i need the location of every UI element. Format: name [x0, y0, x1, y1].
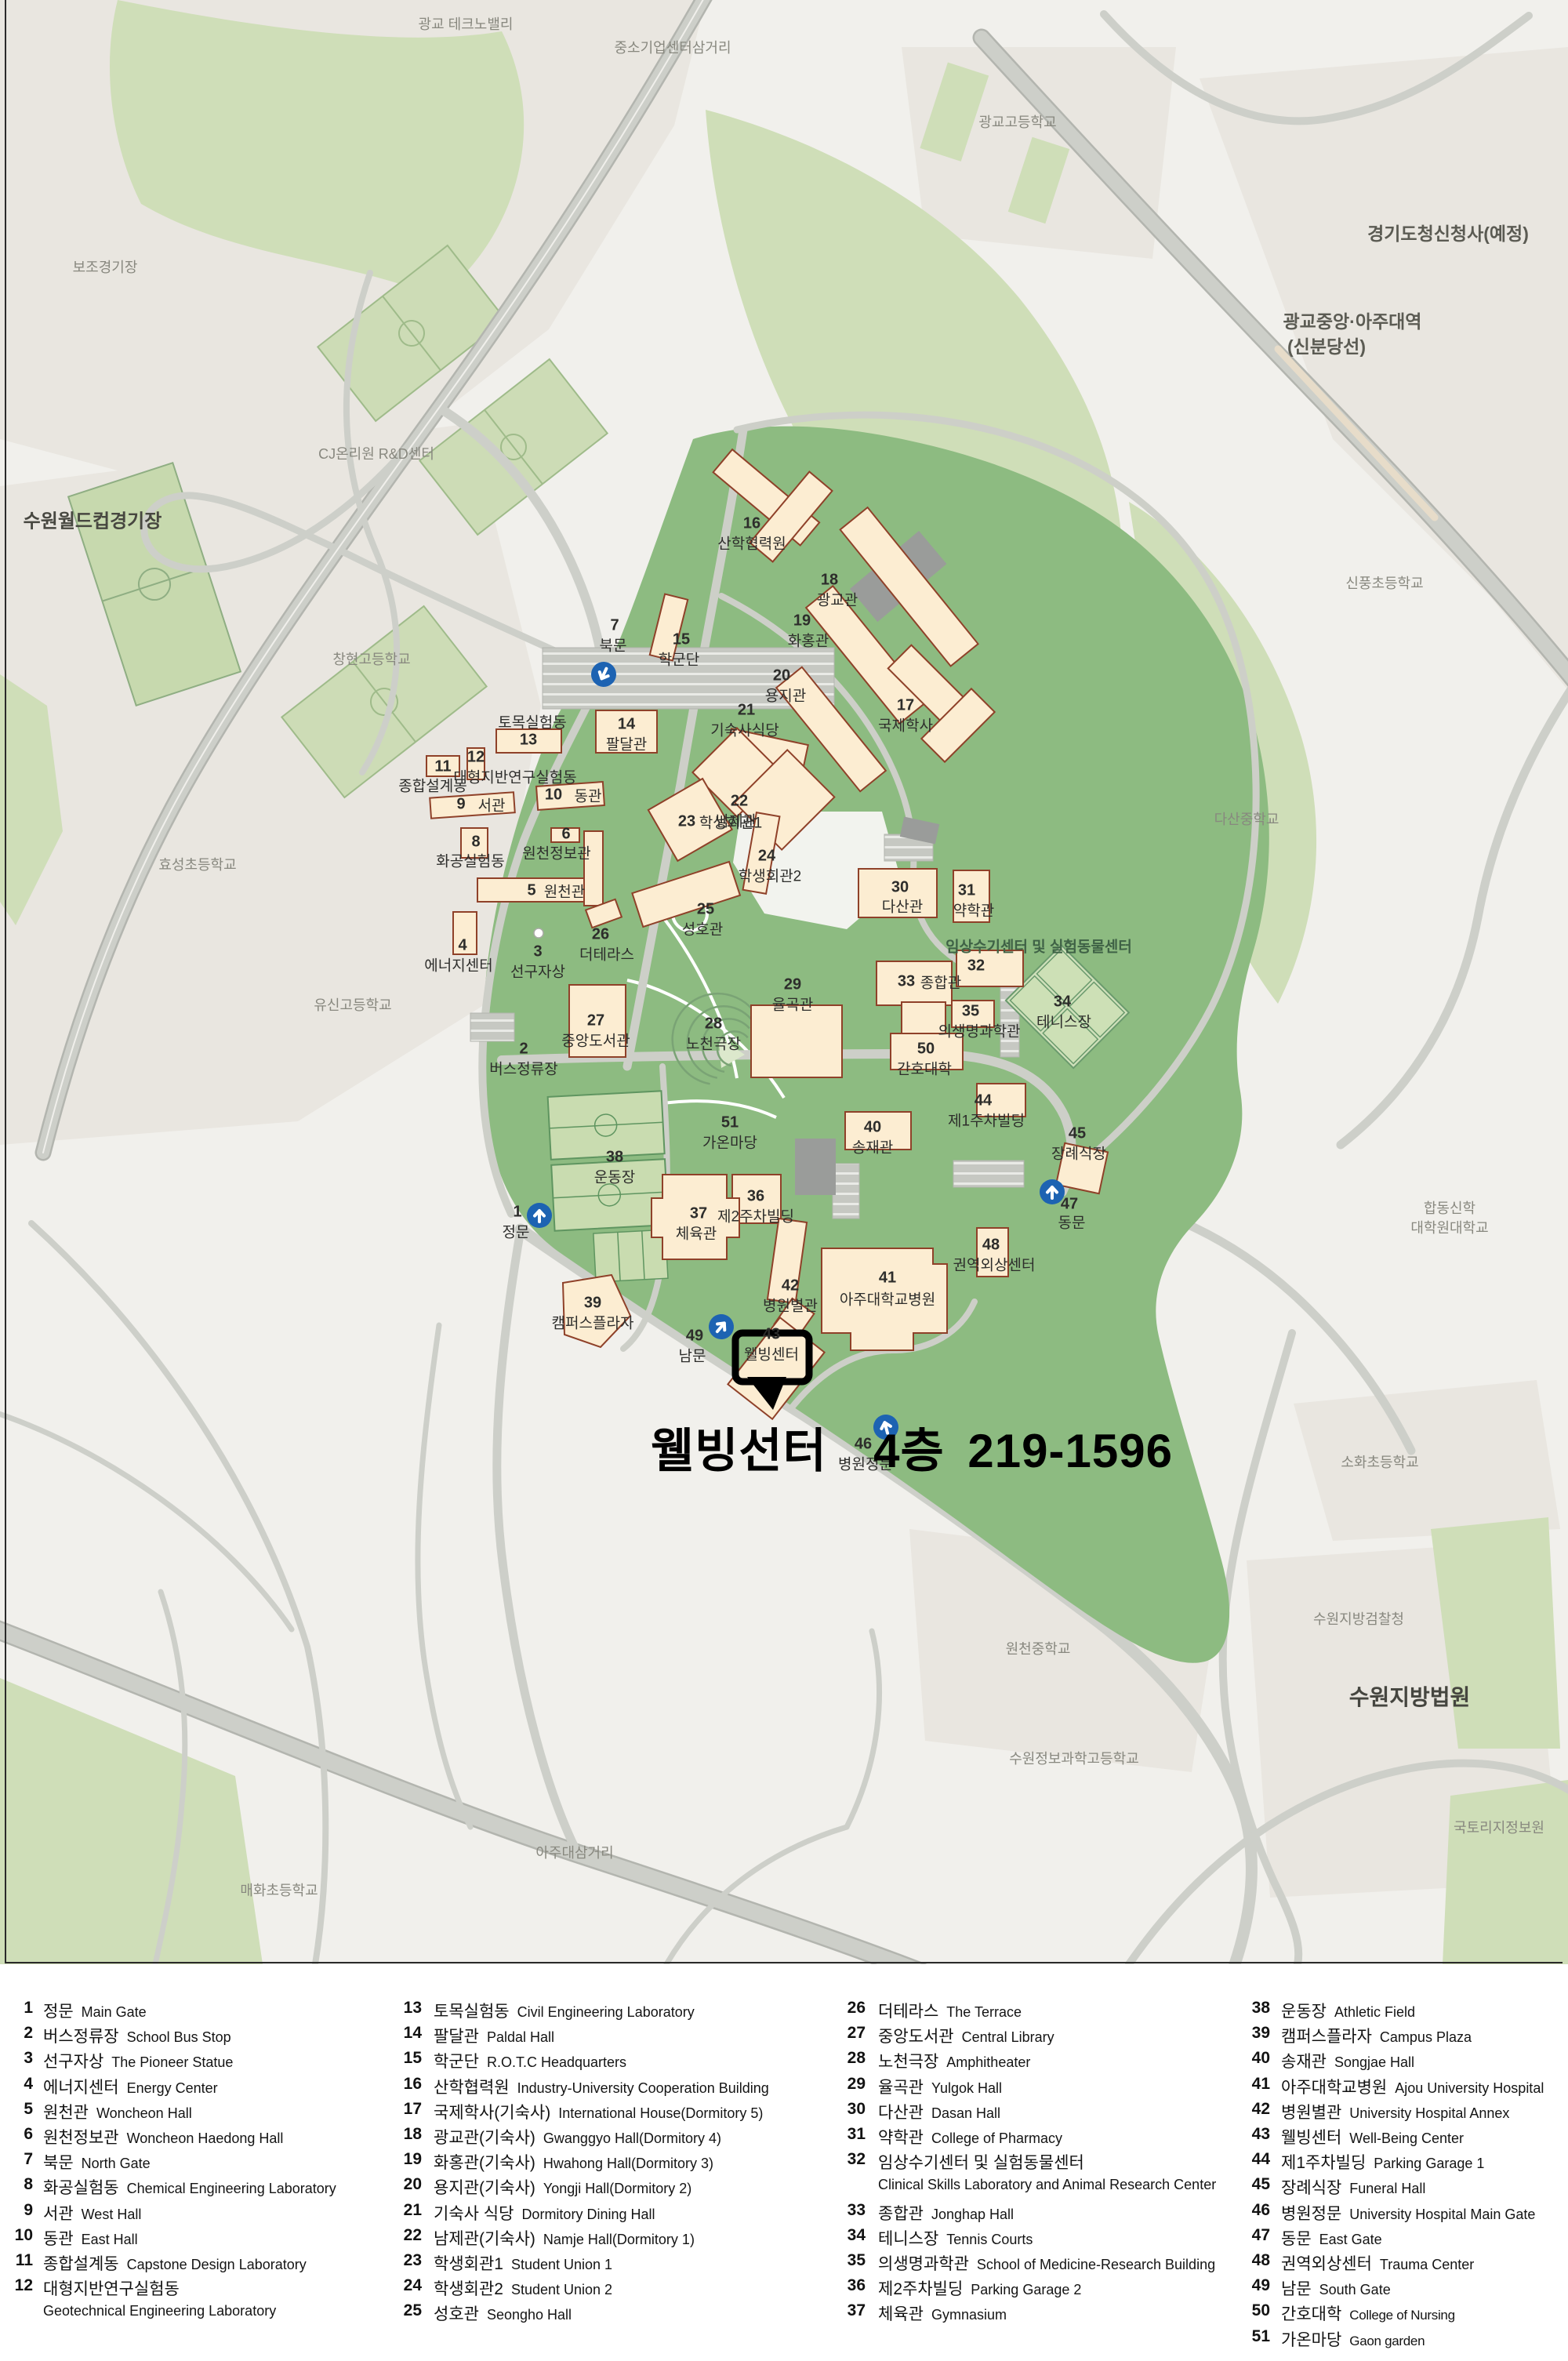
legend-number: 40 — [1232, 2049, 1270, 2068]
legend-korean-name: 간호대학 — [1281, 2305, 1341, 2323]
legend-korean-name: 원천정보관 — [43, 2129, 119, 2147]
legend-english-name: Trauma Center — [1380, 2257, 1474, 2272]
legend-korean-name: 병원정문 — [1281, 2205, 1341, 2223]
legend-english-name: Funeral Hall — [1349, 2181, 1425, 2196]
legend-english-name: North Gate — [82, 2156, 151, 2171]
legend-number: 3 — [0, 2049, 33, 2068]
legend-number: 31 — [828, 2125, 866, 2144]
legend-entry: 학생회관2Student Union 2 — [434, 2276, 612, 2300]
legend-number: 46 — [1232, 2201, 1270, 2220]
legend-korean-name: 종합설계동 — [43, 2255, 119, 2273]
legend-korean-name: 토목실험동 — [434, 2003, 510, 2021]
legend-number: 32 — [828, 2150, 866, 2169]
legend-number: 9 — [0, 2201, 33, 2220]
legend-korean-name: 남문 — [1281, 2280, 1312, 2298]
legend-korean-name: 서관 — [43, 2205, 74, 2223]
legend-korean-name: 기숙사 식당 — [434, 2205, 514, 2223]
legend-korean-name: 제2주차빌딩 — [878, 2280, 963, 2298]
legend-number: 48 — [1232, 2251, 1270, 2270]
legend-korean-name: 화공실험동 — [43, 2179, 119, 2197]
legend-number: 38 — [1232, 1999, 1270, 2018]
legend-english-name: Hwahong Hall(Dormitory 3) — [543, 2156, 713, 2171]
legend-number: 29 — [828, 2075, 866, 2094]
legend-entry: 임상수기센터 및 실험동물센터 — [878, 2150, 1084, 2174]
legend-english-name: Parking Garage 1 — [1374, 2156, 1484, 2171]
legend-number: 50 — [1232, 2301, 1270, 2320]
legend-korean-name: 국제학사(기숙사) — [434, 2104, 550, 2122]
legend-number: 47 — [1232, 2226, 1270, 2245]
legend-korean-name: 병원별관 — [1281, 2104, 1341, 2122]
legend-number: 51 — [1232, 2327, 1270, 2346]
legend-english-name: Geotechnical Engineering Laboratory — [43, 2303, 276, 2319]
legend-english-name: West Hall — [82, 2207, 142, 2222]
legend-english-name: The Terrace — [946, 2004, 1022, 2020]
legend-number: 12 — [0, 2276, 33, 2295]
up-arrow-icon — [1040, 1179, 1065, 1204]
legend-entry: 중앙도서관Central Library — [878, 2024, 1054, 2047]
legend-entry: 북문North Gate — [43, 2150, 151, 2174]
legend-number: 22 — [384, 2226, 422, 2245]
legend-entry: 캠퍼스플라자Campus Plaza — [1281, 2024, 1472, 2047]
legend-entry: 의생명과학관School of Medicine-Research Buildi… — [878, 2251, 1215, 2275]
legend-english-name: University Hospital Main Gate — [1349, 2207, 1535, 2222]
legend-entry: 노천극장Amphitheater — [878, 2049, 1030, 2072]
legend-entry: 남문South Gate — [1281, 2276, 1391, 2300]
legend-number: 30 — [828, 2100, 866, 2119]
legend-entry: 광교관(기숙사)Gwanggyo Hall(Dormitory 4) — [434, 2125, 721, 2149]
legend-entry: 화공실험동Chemical Engineering Laboratory — [43, 2175, 336, 2199]
legend-entry: 용지관(기숙사)Yongji Hall(Dormitory 2) — [434, 2175, 691, 2199]
legend-english-name: Dormitory Dining Hall — [521, 2207, 655, 2222]
legend-english-name: Jonghap Hall — [931, 2207, 1014, 2222]
legend-number: 36 — [828, 2276, 866, 2295]
legend-korean-name: 동문 — [1281, 2230, 1312, 2248]
legend-english-name: Woncheon Haedong Hall — [127, 2130, 284, 2146]
campus-map-page: 광교 테크노밸리중소기업센터삼거리광교고등학교경기도청신청사(예정)광교중앙·아… — [0, 0, 1568, 2361]
legend-number: 39 — [1232, 2024, 1270, 2043]
legend-korean-name: 종합관 — [878, 2205, 924, 2223]
legend-entry: 종합설계동Capstone Design Laboratory — [43, 2251, 307, 2275]
legend-korean-name: 정문 — [43, 2003, 74, 2021]
legend-korean-name: 율곡관 — [878, 2079, 924, 2097]
legend-english-name: Central Library — [962, 2029, 1054, 2045]
legend-english-name: Amphitheater — [946, 2054, 1030, 2070]
legend-number: 21 — [384, 2201, 422, 2220]
legend-entry: 학군단R.O.T.C Headquarters — [434, 2049, 626, 2072]
legend-number: 10 — [0, 2226, 33, 2245]
legend-english-name: Chemical Engineering Laboratory — [127, 2181, 336, 2196]
legend-english-name: Athletic Field — [1334, 2004, 1415, 2020]
legend-korean-name: 선구자상 — [43, 2053, 103, 2071]
legend-korean-name: 웰빙센터 — [1281, 2129, 1341, 2147]
legend-entry: 종합관Jonghap Hall — [878, 2201, 1014, 2225]
legend-english-name: School of Medicine-Research Building — [977, 2257, 1215, 2272]
legend-number: 26 — [828, 1999, 866, 2018]
legend-english-name: Seongho Hall — [487, 2307, 572, 2323]
legend-entry: 간호대학College of Nursing — [1281, 2301, 1455, 2325]
legend-english-name: Paldal Hall — [487, 2029, 554, 2045]
legend-number: 15 — [384, 2049, 422, 2068]
legend-korean-name: 약학관 — [878, 2129, 924, 2147]
legend-english-name: East Hall — [82, 2232, 138, 2247]
legend-korean-name: 아주대학교병원 — [1281, 2079, 1387, 2097]
legend-entry: 화홍관(기숙사)Hwahong Hall(Dormitory 3) — [434, 2150, 713, 2174]
legend-english-name: College of Nursing — [1349, 2308, 1454, 2323]
legend-english-name: Namje Hall(Dormitory 1) — [543, 2232, 695, 2247]
legend-number: 8 — [0, 2175, 33, 2194]
legend-number: 42 — [1232, 2100, 1270, 2119]
legend-number: 19 — [384, 2150, 422, 2169]
legend-korean-name: 임상수기센터 및 실험동물센터 — [878, 2154, 1084, 2172]
legend-english-name: Industry-University Cooperation Building — [517, 2080, 769, 2096]
legend-number: 44 — [1232, 2150, 1270, 2169]
legend-entry: 웰빙센터Well-Being Center — [1281, 2125, 1464, 2149]
legend-entry: 장례식장Funeral Hall — [1281, 2175, 1425, 2199]
legend-english-name: Main Gate — [82, 2004, 147, 2020]
legend-entry: 동문East Gate — [1281, 2226, 1382, 2250]
legend-entry: 더테라스The Terrace — [878, 1999, 1022, 2022]
legend-english-name: Student Union 1 — [511, 2257, 612, 2272]
legend-english-name: Songjae Hall — [1334, 2054, 1414, 2070]
legend-english-name: South Gate — [1319, 2282, 1391, 2297]
legend-entry: 아주대학교병원Ajou University Hospital — [1281, 2075, 1544, 2098]
legend-entry: 약학관College of Pharmacy — [878, 2125, 1062, 2149]
legend-entry: 다산관Dasan Hall — [878, 2100, 1000, 2123]
legend-english-name: Gymnasium — [931, 2307, 1007, 2323]
legend-number: 13 — [384, 1999, 422, 2018]
legend-entry: 병원별관University Hospital Annex — [1281, 2100, 1509, 2123]
legend-korean-name: 원천관 — [43, 2104, 89, 2122]
legend-number: 16 — [384, 2075, 422, 2094]
legend-english-name: Energy Center — [127, 2080, 218, 2096]
legend-english-name: East Gate — [1319, 2232, 1382, 2247]
legend-korean-name: 광교관(기숙사) — [434, 2129, 535, 2147]
legend-english-name: Campus Plaza — [1380, 2029, 1472, 2045]
legend-english-name: Yongji Hall(Dormitory 2) — [543, 2181, 691, 2196]
legend: 1정문Main Gate2버스정류장School Bus Stop3선구자상Th… — [0, 1964, 1568, 2361]
legend-number: 34 — [828, 2226, 866, 2245]
legend-entry: 기숙사 식당Dormitory Dining Hall — [434, 2201, 655, 2225]
legend-number: 43 — [1232, 2125, 1270, 2144]
legend-korean-name: 산학협력원 — [434, 2079, 510, 2097]
legend-entry: Geotechnical Engineering Laboratory — [43, 2301, 276, 2320]
legend-number: 17 — [384, 2100, 422, 2119]
legend-number: 28 — [828, 2049, 866, 2068]
legend-entry: 대형지반연구실험동 — [43, 2276, 180, 2300]
legend-number: 35 — [828, 2251, 866, 2270]
legend-entry: 율곡관Yulgok Hall — [878, 2075, 1002, 2098]
legend-entry: 국제학사(기숙사)International House(Dormitory 5… — [434, 2100, 763, 2123]
legend-entry: 학생회관1Student Union 1 — [434, 2251, 612, 2275]
legend-korean-name: 버스정류장 — [43, 2028, 119, 2046]
legend-english-name: Clinical Skills Laboratory and Animal Re… — [878, 2177, 1216, 2192]
legend-entry: 가온마당Gaon garden — [1281, 2327, 1425, 2351]
east-gate-arrow — [1040, 1179, 1065, 1204]
legend-korean-name: 권역외상센터 — [1281, 2255, 1372, 2273]
legend-entry: 산학협력원Industry-University Cooperation Bui… — [434, 2075, 769, 2098]
legend-number: 6 — [0, 2125, 33, 2144]
legend-english-name: Student Union 2 — [511, 2282, 612, 2297]
legend-korean-name: 화홍관(기숙사) — [434, 2154, 535, 2172]
legend-number: 27 — [828, 2024, 866, 2043]
legend-korean-name: 용지관(기숙사) — [434, 2179, 535, 2197]
legend-korean-name: 남제관(기숙사) — [434, 2230, 535, 2248]
legend-number: 37 — [828, 2301, 866, 2320]
legend-entry: Clinical Skills Laboratory and Animal Re… — [878, 2175, 1216, 2194]
legend-korean-name: 노천극장 — [878, 2053, 938, 2071]
legend-english-name: Dasan Hall — [931, 2105, 1000, 2121]
legend-entry: 남제관(기숙사)Namje Hall(Dormitory 1) — [434, 2226, 695, 2250]
pioneer-statue-dot — [534, 928, 543, 938]
legend-korean-name: 학생회관1 — [434, 2255, 503, 2273]
legend-entry: 버스정류장School Bus Stop — [43, 2024, 231, 2047]
main-gate-arrow — [527, 1203, 552, 1228]
legend-korean-name: 장례식장 — [1281, 2179, 1341, 2197]
legend-korean-name: 성호관 — [434, 2305, 479, 2323]
wellbeing-center-annotation: 웰빙선터 4층 219-1596 — [651, 1413, 1173, 1481]
legend-number: 49 — [1232, 2276, 1270, 2295]
legend-english-name: School Bus Stop — [127, 2029, 231, 2045]
legend-number: 7 — [0, 2150, 33, 2169]
legend-number: 5 — [0, 2100, 33, 2119]
legend-english-name: College of Pharmacy — [931, 2130, 1062, 2146]
legend-english-name: R.O.T.C Headquarters — [487, 2054, 626, 2070]
legend-number: 41 — [1232, 2075, 1270, 2094]
legend-entry: 체육관Gymnasium — [878, 2301, 1007, 2325]
legend-english-name: University Hospital Annex — [1349, 2105, 1509, 2121]
legend-entry: 권역외상센터Trauma Center — [1281, 2251, 1474, 2275]
legend-english-name: Ajou University Hospital — [1395, 2080, 1544, 2096]
legend-entry: 병원정문University Hospital Main Gate — [1281, 2201, 1535, 2225]
legend-entry: 팔달관Paldal Hall — [434, 2024, 554, 2047]
legend-number: 4 — [0, 2075, 33, 2094]
map-canvas — [0, 0, 1568, 1964]
legend-english-name: Parking Garage 2 — [971, 2282, 1081, 2297]
legend-number: 23 — [384, 2251, 422, 2270]
legend-number: 1 — [0, 1999, 33, 2018]
legend-entry: 송재관Songjae Hall — [1281, 2049, 1414, 2072]
legend-korean-name: 다산관 — [878, 2104, 924, 2122]
legend-english-name: International House(Dormitory 5) — [558, 2105, 763, 2121]
up-arrow-icon — [527, 1203, 552, 1228]
legend-korean-name: 체육관 — [878, 2305, 924, 2323]
legend-number: 24 — [384, 2276, 422, 2295]
legend-entry: 원천관Woncheon Hall — [43, 2100, 192, 2123]
legend-korean-name: 에너지센터 — [43, 2079, 119, 2097]
legend-english-name: Tennis Courts — [946, 2232, 1033, 2247]
legend-entry: 테니스장Tennis Courts — [878, 2226, 1033, 2250]
legend-number: 20 — [384, 2175, 422, 2194]
legend-english-name: Woncheon Hall — [96, 2105, 192, 2121]
legend-korean-name: 의생명과학관 — [878, 2255, 969, 2273]
legend-korean-name: 북문 — [43, 2154, 74, 2172]
legend-entry: 서관West Hall — [43, 2201, 141, 2225]
legend-entry: 원천정보관Woncheon Haedong Hall — [43, 2125, 283, 2149]
legend-number: 14 — [384, 2024, 422, 2043]
legend-entry: 동관East Hall — [43, 2226, 138, 2250]
legend-number: 2 — [0, 2024, 33, 2043]
legend-number: 45 — [1232, 2175, 1270, 2194]
legend-english-name: Yulgok Hall — [931, 2080, 1002, 2096]
legend-english-name: Gaon garden — [1349, 2334, 1425, 2348]
legend-korean-name: 가온마당 — [1281, 2331, 1341, 2349]
legend-english-name: The Pioneer Statue — [111, 2054, 233, 2070]
legend-entry: 정문Main Gate — [43, 1999, 147, 2022]
legend-korean-name: 제1주차빌딩 — [1281, 2154, 1366, 2172]
legend-korean-name: 동관 — [43, 2230, 74, 2248]
legend-korean-name: 학생회관2 — [434, 2280, 503, 2298]
legend-entry: 성호관Seongho Hall — [434, 2301, 572, 2325]
legend-entry: 제2주차빌딩Parking Garage 2 — [878, 2276, 1081, 2300]
legend-entry: 제1주차빌딩Parking Garage 1 — [1281, 2150, 1484, 2174]
legend-english-name: Civil Engineering Laboratory — [517, 2004, 695, 2020]
legend-korean-name: 더테라스 — [878, 2003, 938, 2021]
legend-number: 11 — [0, 2251, 33, 2270]
legend-english-name: Capstone Design Laboratory — [127, 2257, 307, 2272]
legend-korean-name: 대형지반연구실험동 — [43, 2280, 180, 2298]
legend-number: 25 — [384, 2301, 422, 2320]
legend-korean-name: 송재관 — [1281, 2053, 1327, 2071]
legend-korean-name: 학군단 — [434, 2053, 479, 2071]
legend-entry: 에너지센터Energy Center — [43, 2075, 218, 2098]
legend-korean-name: 운동장 — [1281, 2003, 1327, 2021]
legend-english-name: Well-Being Center — [1349, 2130, 1464, 2146]
legend-entry: 운동장Athletic Field — [1281, 1999, 1415, 2022]
legend-number: 33 — [828, 2201, 866, 2220]
legend-entry: 선구자상The Pioneer Statue — [43, 2049, 233, 2072]
legend-english-name: Gwanggyo Hall(Dormitory 4) — [543, 2130, 721, 2146]
legend-korean-name: 중앙도서관 — [878, 2028, 954, 2046]
legend-korean-name: 팔달관 — [434, 2028, 479, 2046]
legend-number: 18 — [384, 2125, 422, 2144]
legend-korean-name: 캠퍼스플라자 — [1281, 2028, 1372, 2046]
legend-korean-name: 테니스장 — [878, 2230, 938, 2248]
legend-entry: 토목실험동Civil Engineering Laboratory — [434, 1999, 695, 2022]
